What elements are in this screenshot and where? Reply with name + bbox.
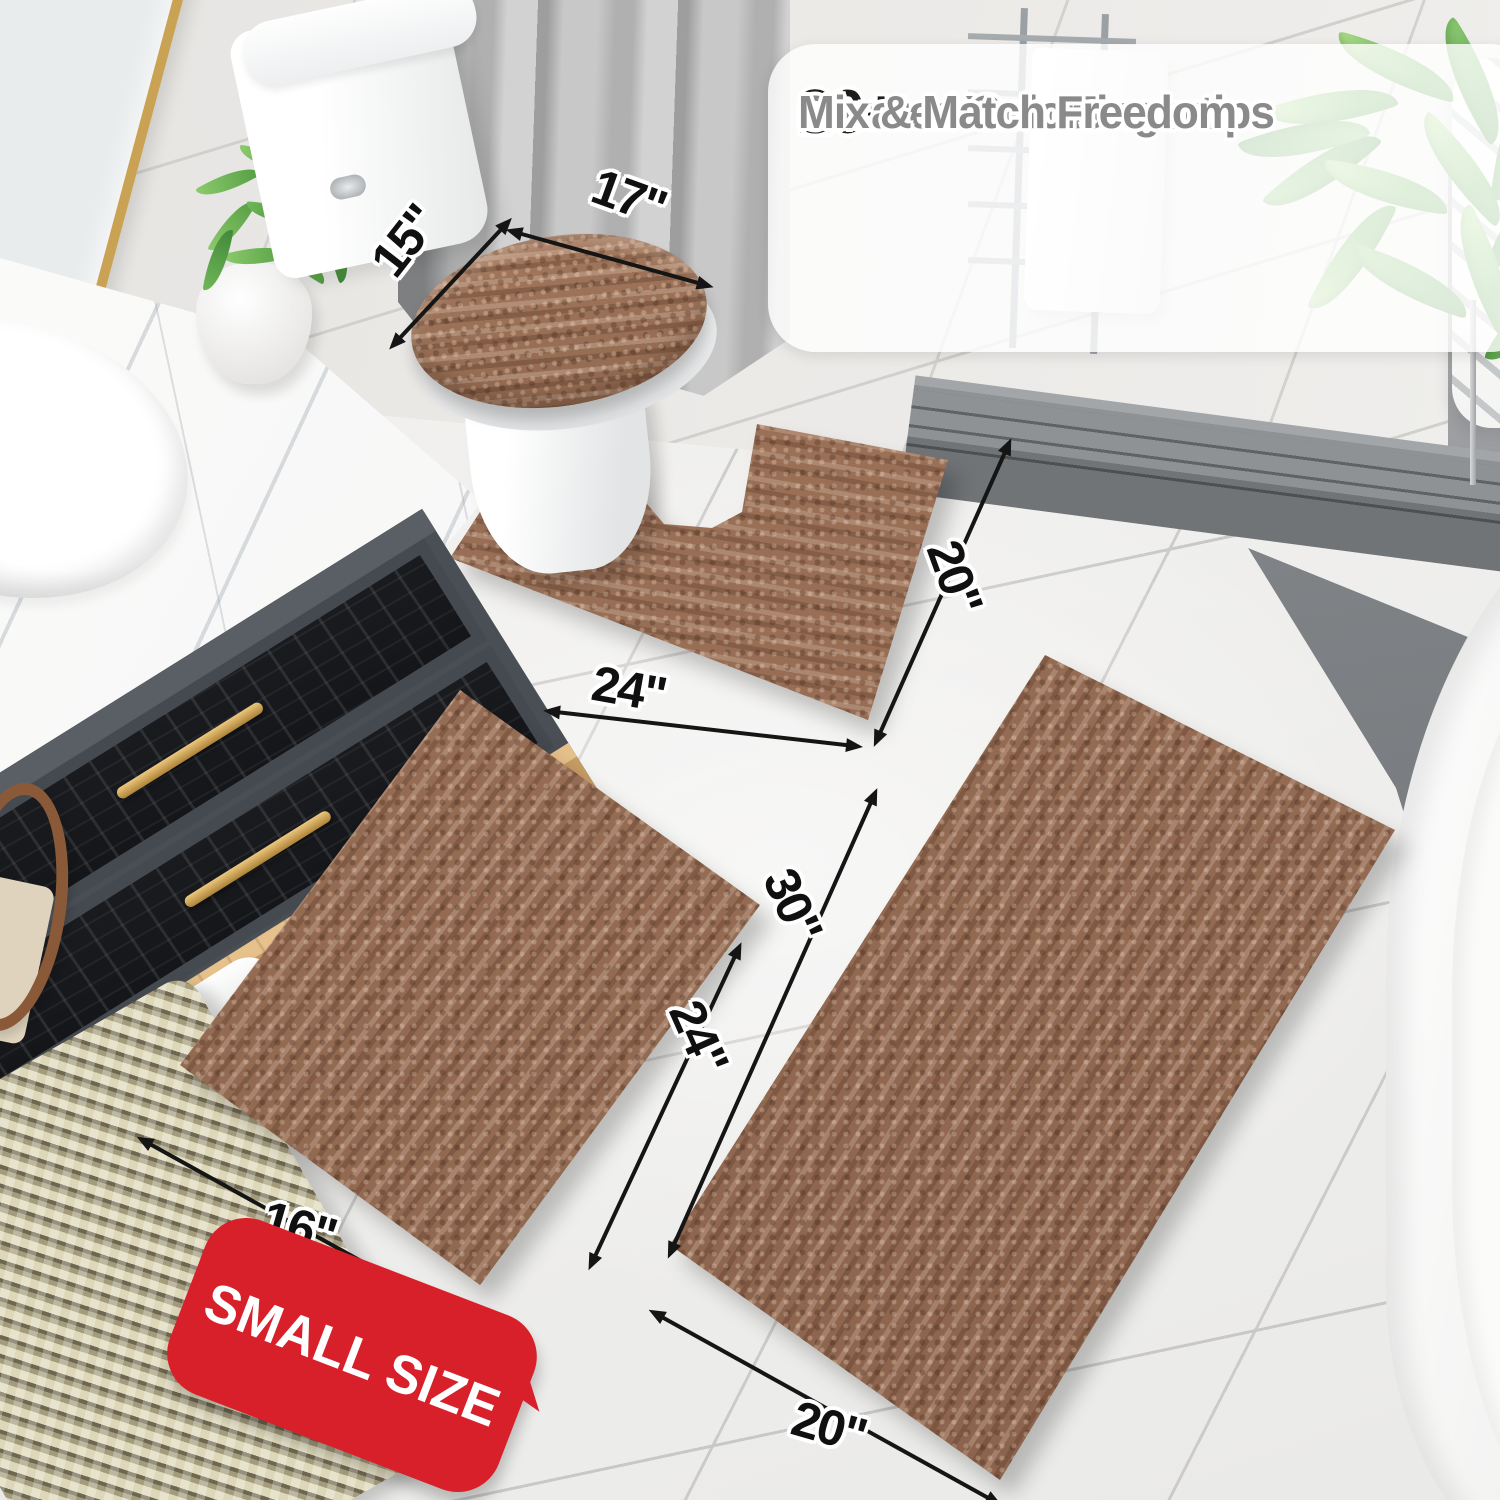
dimension-label-contour-width: 24" [588, 654, 670, 724]
feature-label: Mix & Match Freedom [798, 85, 1236, 139]
product-image: MISQ ✓ 20+ Sizes at Your Fingertips ✓ 30… [0, 0, 1500, 1500]
feature-row: ✓ Mix & Match Freedom [798, 68, 1500, 156]
feature-panel: ✓ 20+ Sizes at Your Fingertips ✓ 30+ Cur… [768, 44, 1500, 352]
